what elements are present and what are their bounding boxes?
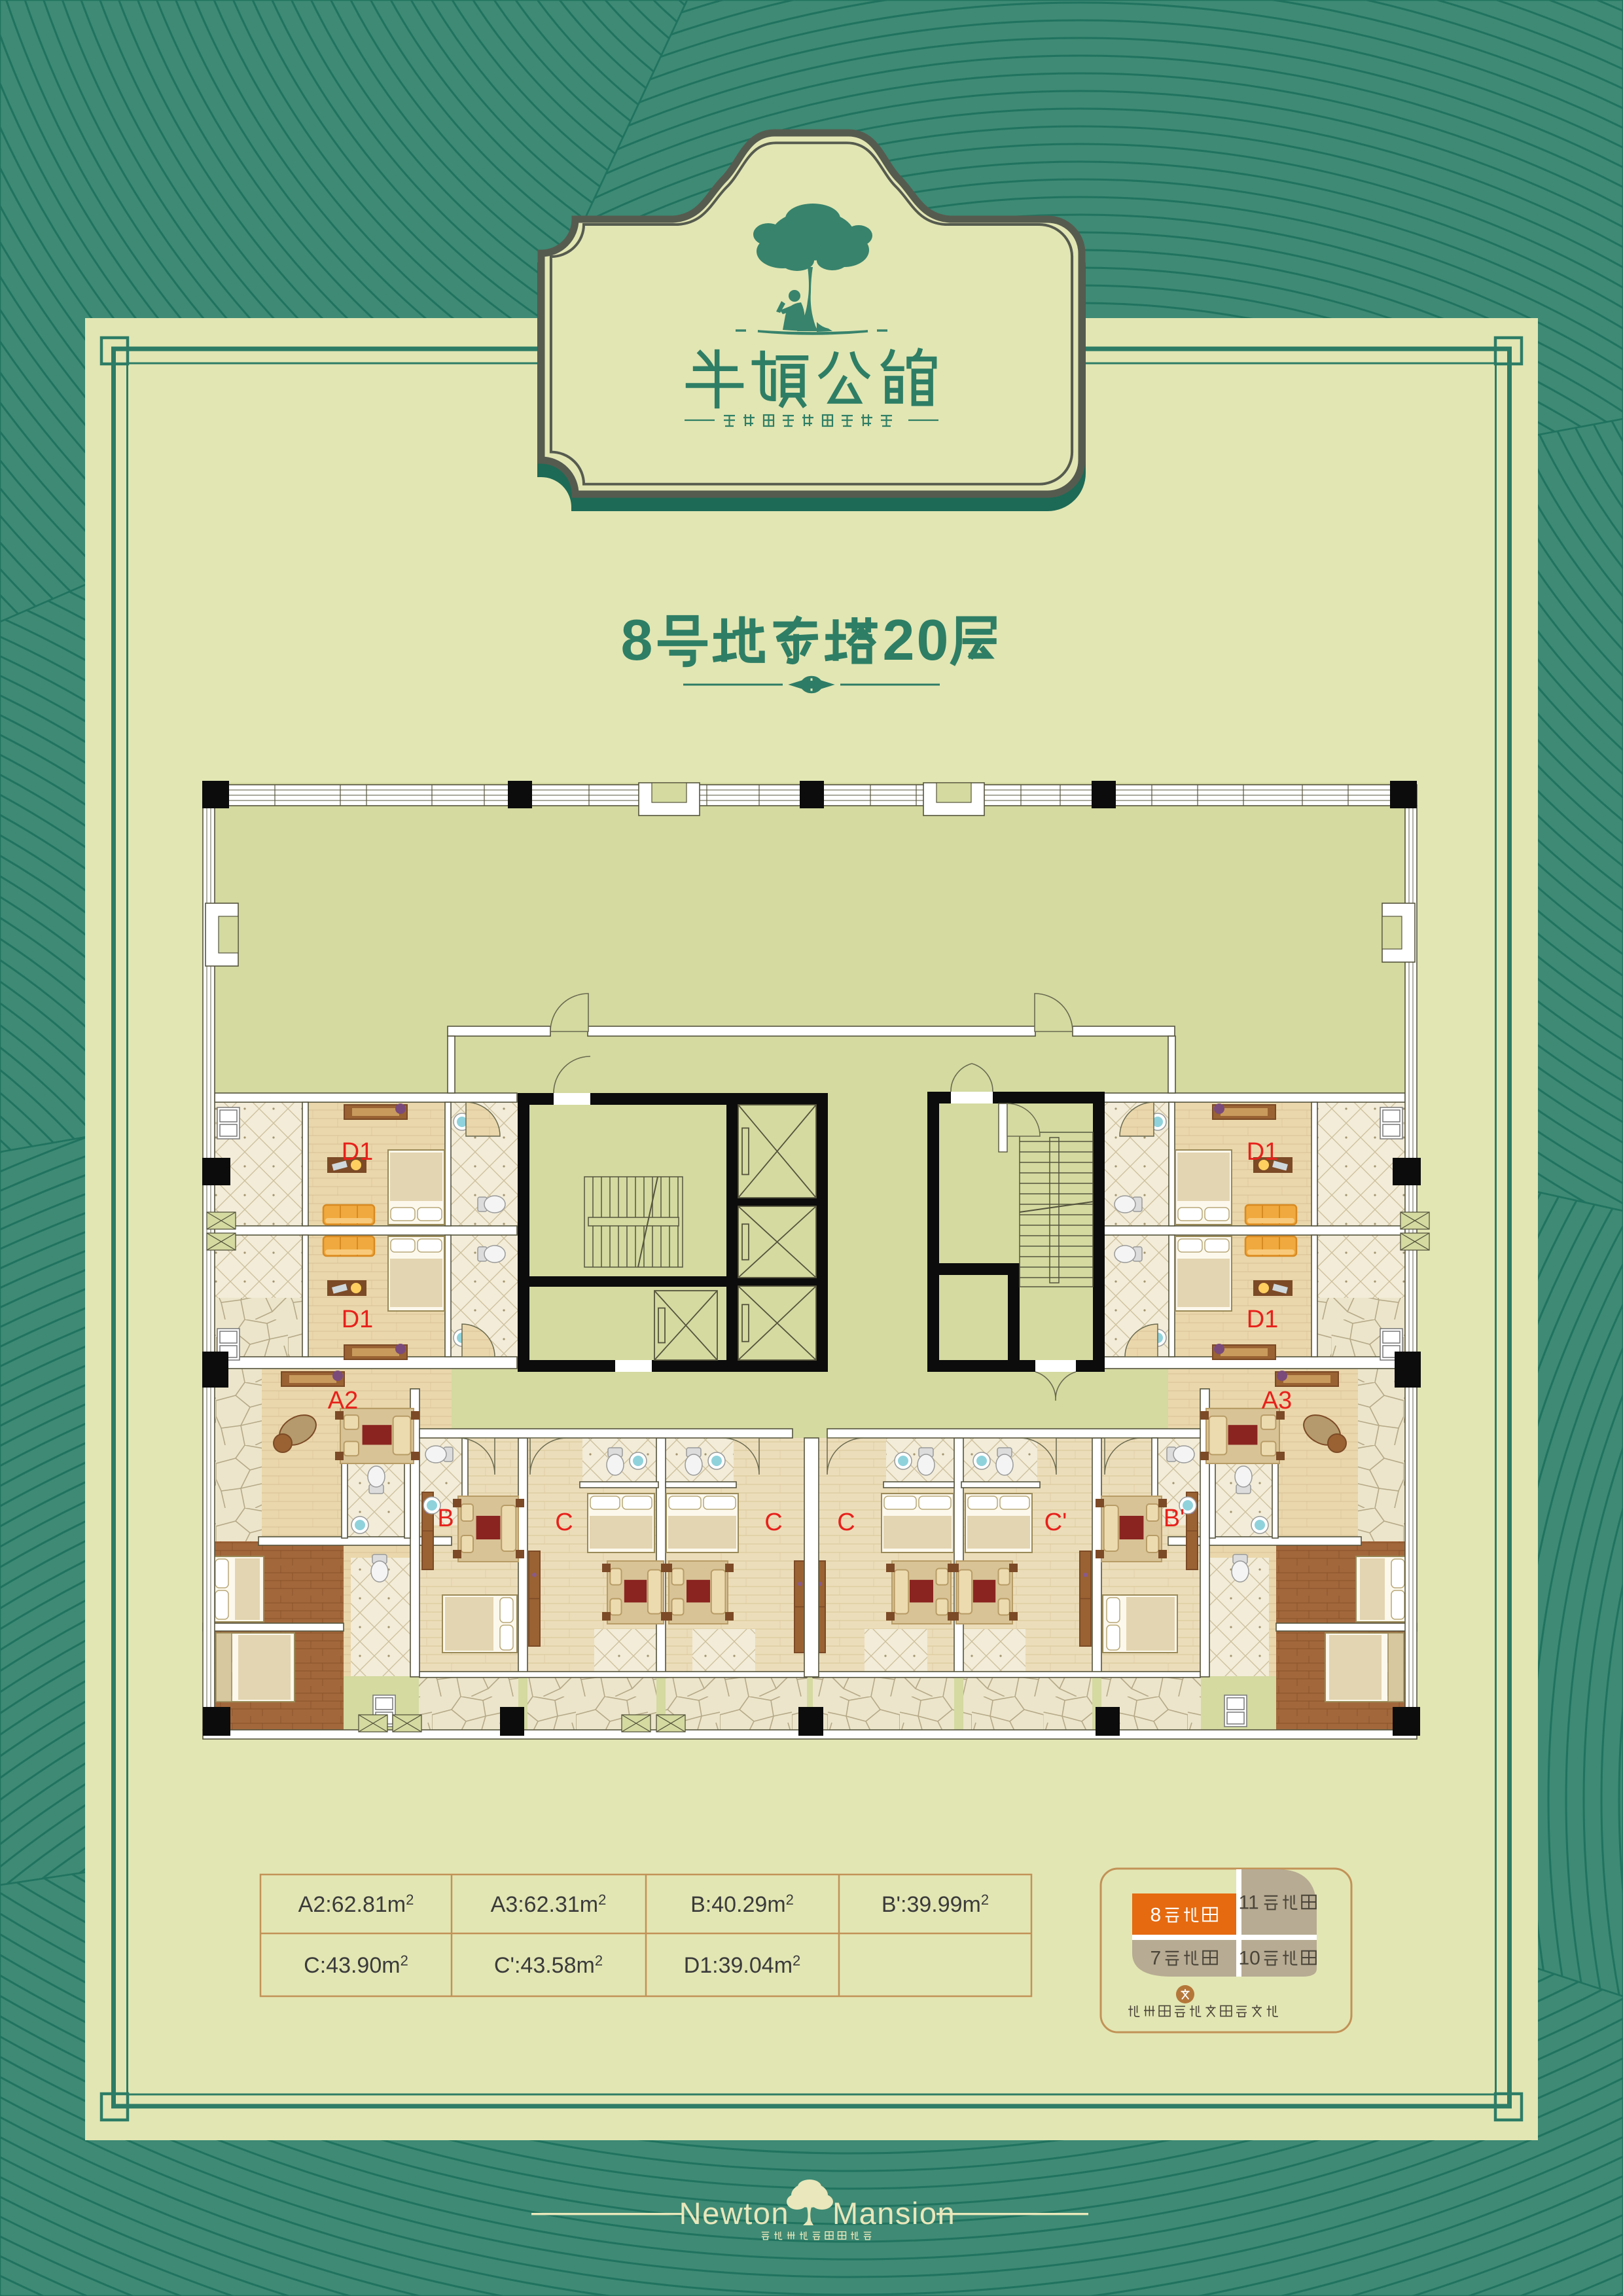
svg-text:D1:39.04m2: D1:39.04m2 xyxy=(684,1952,801,1978)
svg-text:Newton: Newton xyxy=(679,2196,789,2231)
svg-text:C: C xyxy=(837,1509,855,1536)
svg-text:2: 2 xyxy=(883,607,915,672)
svg-text:C:43.90m2: C:43.90m2 xyxy=(304,1952,408,1978)
svg-text:D1: D1 xyxy=(1247,1138,1279,1166)
svg-text:C': C' xyxy=(1044,1509,1067,1536)
svg-text:A2: A2 xyxy=(328,1387,358,1414)
svg-text:C: C xyxy=(764,1509,782,1536)
svg-text:11: 11 xyxy=(1239,1892,1259,1913)
svg-text:10: 10 xyxy=(1239,1947,1260,1969)
svg-text:A3:62.31m2: A3:62.31m2 xyxy=(491,1892,607,1917)
svg-text:0: 0 xyxy=(917,607,949,672)
svg-text:B: B xyxy=(437,1505,454,1532)
svg-text:C':43.58m2: C':43.58m2 xyxy=(494,1952,603,1978)
svg-text:C: C xyxy=(555,1509,573,1536)
svg-text:B:40.29m2: B:40.29m2 xyxy=(690,1892,794,1917)
svg-text:B': B' xyxy=(1164,1505,1185,1532)
svg-text:A3: A3 xyxy=(1262,1387,1292,1414)
svg-text:D1: D1 xyxy=(342,1138,374,1166)
svg-text:B':39.99m2: B':39.99m2 xyxy=(882,1892,989,1917)
svg-text:8: 8 xyxy=(1150,1904,1162,1926)
svg-text:7: 7 xyxy=(1150,1947,1162,1969)
svg-text:A2:62.81m2: A2:62.81m2 xyxy=(298,1892,414,1917)
svg-text:D1: D1 xyxy=(342,1306,374,1333)
svg-text:Mansion: Mansion xyxy=(832,2196,955,2231)
svg-text:8: 8 xyxy=(621,607,653,672)
svg-text:D1: D1 xyxy=(1247,1306,1279,1333)
